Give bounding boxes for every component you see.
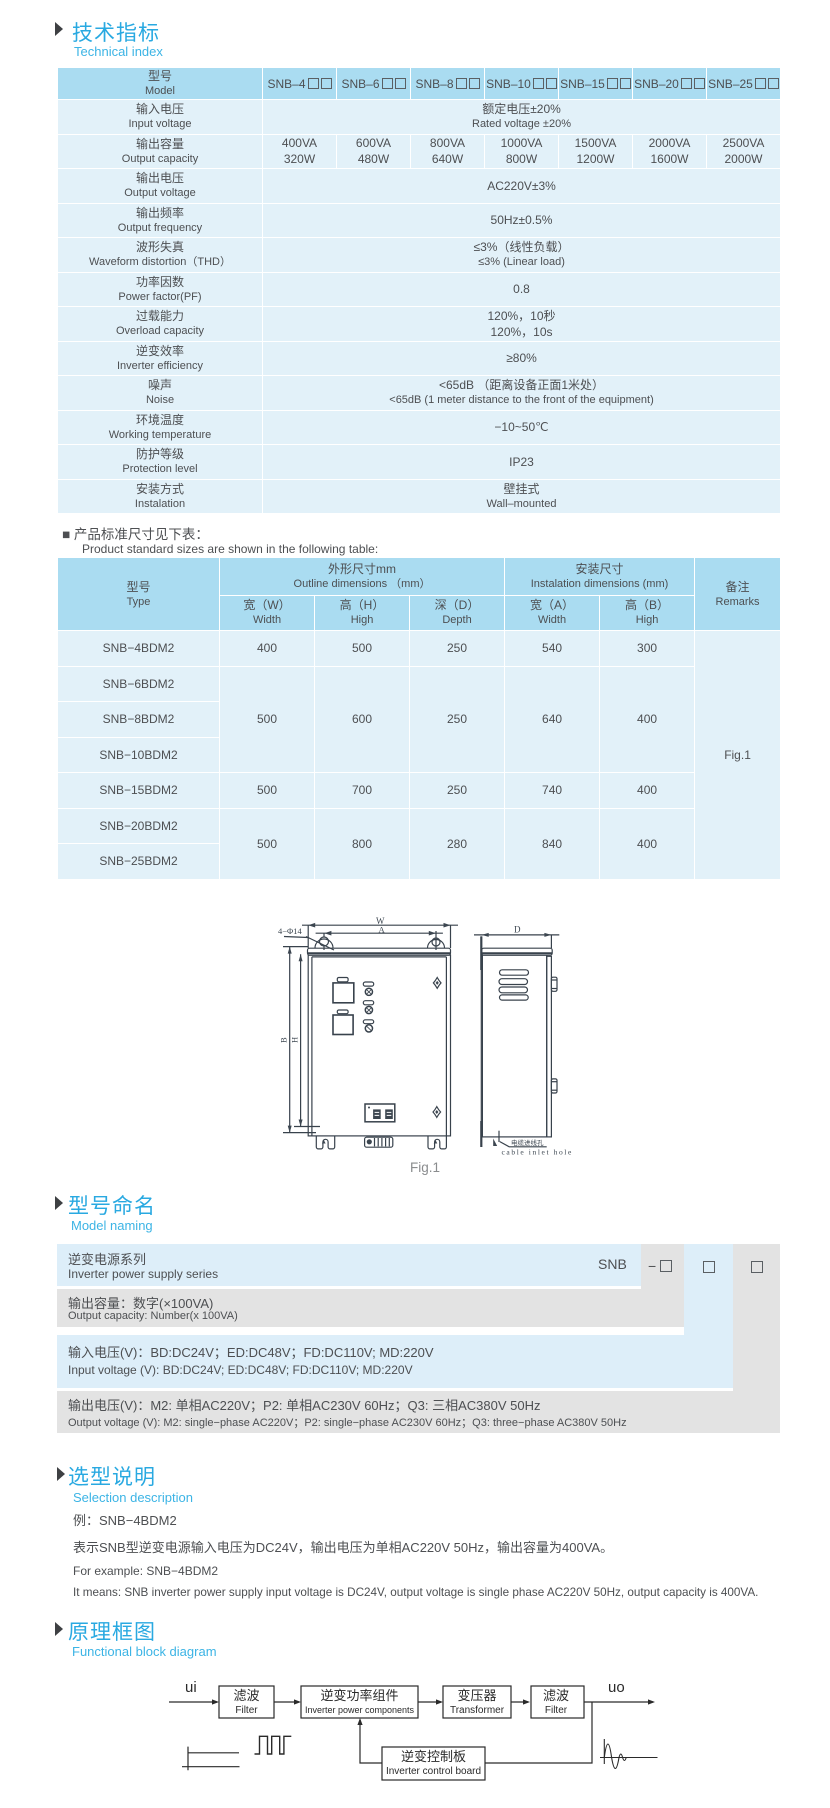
- svg-text:滤波: 滤波: [543, 1688, 569, 1703]
- svg-text:滤波: 滤波: [233, 1688, 259, 1703]
- svg-text:D: D: [514, 925, 521, 935]
- svg-text:Inverter control board: Inverter control board: [386, 1766, 481, 1777]
- svg-text:Transformer: Transformer: [450, 1705, 505, 1716]
- svg-text:电缆进线孔: 电缆进线孔: [511, 1138, 544, 1147]
- svg-text:B: B: [279, 1037, 289, 1043]
- svg-text:ui: ui: [185, 1679, 197, 1696]
- svg-text:变压器: 变压器: [457, 1688, 496, 1703]
- svg-text:Filter: Filter: [545, 1705, 568, 1716]
- svg-text:4−Φ14: 4−Φ14: [278, 926, 303, 936]
- svg-text:Filter: Filter: [235, 1705, 258, 1716]
- svg-text:Fig.1: Fig.1: [410, 1160, 440, 1175]
- svg-text:逆变控制板: 逆变控制板: [401, 1749, 466, 1764]
- svg-text:Inverter power components: Inverter power components: [305, 1705, 415, 1715]
- svg-text:A: A: [379, 925, 386, 935]
- svg-text:uo: uo: [608, 1679, 625, 1696]
- svg-text:H: H: [290, 1037, 300, 1043]
- svg-text:逆变功率组件: 逆变功率组件: [320, 1688, 398, 1703]
- svg-text:cable inlet hole: cable inlet hole: [502, 1148, 573, 1157]
